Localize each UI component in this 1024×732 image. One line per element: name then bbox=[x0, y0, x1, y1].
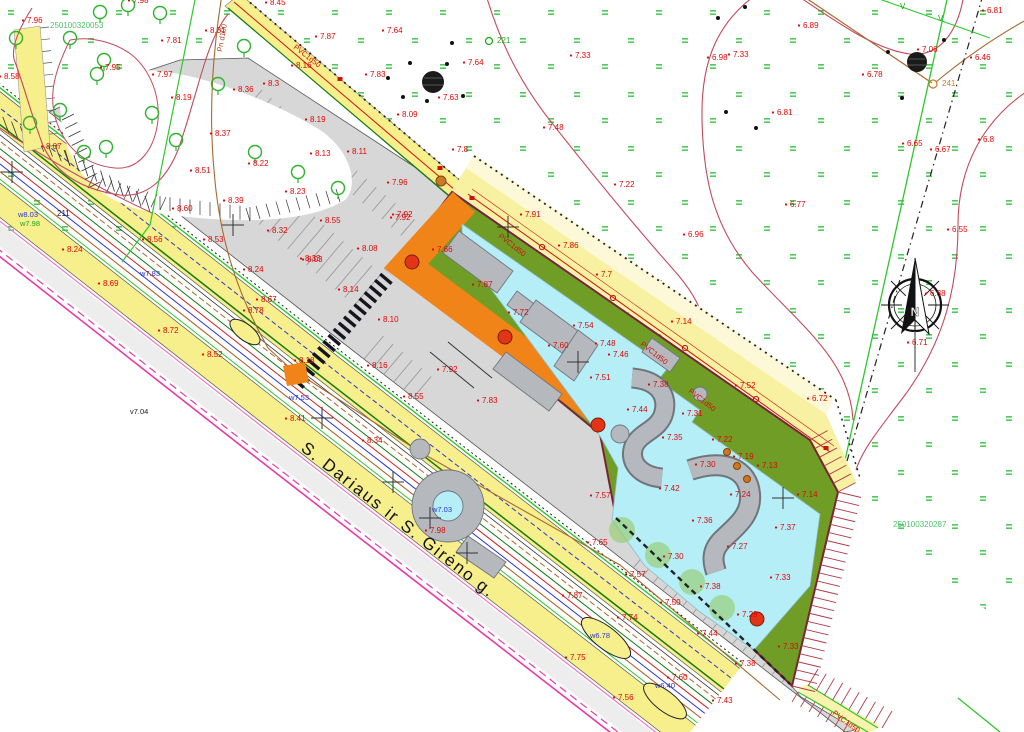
elevation-point bbox=[256, 298, 258, 300]
elevation-point bbox=[472, 283, 474, 285]
elevation-point bbox=[367, 364, 369, 366]
elevation-point bbox=[285, 417, 287, 419]
elevation-point bbox=[925, 292, 927, 294]
elevation-point bbox=[397, 113, 399, 115]
elevation-label: 8.78 bbox=[248, 306, 264, 315]
elevation-label: 7.8 bbox=[457, 145, 469, 154]
elevation-point bbox=[775, 526, 777, 528]
elevation-point bbox=[392, 213, 394, 215]
utility-label: w6.78 bbox=[589, 631, 610, 640]
elevation-point bbox=[452, 148, 454, 150]
elevation-point bbox=[315, 35, 317, 37]
elevation-label: 8.07 bbox=[46, 142, 62, 151]
elevation-label: 7.31 bbox=[687, 409, 703, 418]
elevation-point bbox=[248, 162, 250, 164]
elevation-label: 8.19 bbox=[310, 115, 326, 124]
elevation-point bbox=[365, 73, 367, 75]
elevation-point bbox=[727, 545, 729, 547]
elevation-label: 7.91 bbox=[525, 210, 541, 219]
utility-label: w8.03 bbox=[17, 210, 38, 219]
elevation-point bbox=[320, 219, 322, 221]
elevation-label: 7.42 bbox=[664, 484, 680, 493]
site-plan-canvas: N S. Dariaus ir S. Girėno g. 25010032005… bbox=[0, 0, 1024, 732]
elevation-label: 7.87 bbox=[567, 591, 583, 600]
elevation-label: 8.55 bbox=[325, 216, 341, 225]
survey-point-id: 221 bbox=[497, 36, 511, 45]
elevation-label: 8.11 bbox=[352, 147, 368, 156]
elevation-label: 7.38 bbox=[740, 659, 756, 668]
elevation-point bbox=[627, 408, 629, 410]
elevation-label: 8.69 bbox=[103, 279, 119, 288]
topographic-site-plan: N S. Dariaus ir S. Girėno g. 25010032005… bbox=[0, 0, 1024, 732]
elevation-label: 8.72 bbox=[163, 326, 179, 335]
elevation-point bbox=[22, 19, 24, 21]
elevation-point bbox=[210, 132, 212, 134]
elevation-point bbox=[265, 1, 267, 3]
elevation-point bbox=[205, 29, 207, 31]
elevation-label: 7.54 bbox=[578, 321, 594, 330]
elevation-label: 7.57 bbox=[595, 491, 611, 500]
elevation-point bbox=[310, 152, 312, 154]
elevation-point bbox=[728, 53, 730, 55]
large-tree-icon bbox=[422, 71, 444, 93]
elevation-point bbox=[590, 494, 592, 496]
elevation-point bbox=[294, 359, 296, 361]
elevation-point bbox=[172, 207, 174, 209]
elevation-point bbox=[700, 585, 702, 587]
elevation-label: 6.77 bbox=[790, 200, 806, 209]
elevation-label: 8.58 bbox=[4, 72, 20, 81]
elevation-point bbox=[438, 96, 440, 98]
tree-icon bbox=[436, 176, 446, 186]
utility-label: w7.83 bbox=[139, 269, 160, 278]
elevation-label: 7.86 bbox=[563, 241, 579, 250]
elevation-point bbox=[662, 436, 664, 438]
survey-point-id: 241 bbox=[942, 79, 956, 88]
elevation-point bbox=[917, 48, 919, 50]
elevation-point bbox=[161, 39, 163, 41]
elevation-label: 6.88 bbox=[930, 289, 946, 298]
elevation-label: 8.24 bbox=[248, 265, 264, 274]
utility-label: w6.40 bbox=[654, 681, 675, 690]
elevation-label: 6.81 bbox=[777, 108, 793, 117]
elevation-label: 8.67 bbox=[261, 295, 277, 304]
elevation-point bbox=[565, 656, 567, 658]
elevation-point bbox=[930, 148, 932, 150]
elevation-point bbox=[223, 199, 225, 201]
elevation-point bbox=[663, 555, 665, 557]
survey-point-id: V bbox=[900, 2, 906, 11]
elevation-label: 7.24 bbox=[735, 490, 751, 499]
elevation-label: 7.81 bbox=[166, 36, 182, 45]
elevation-label: 7.92 bbox=[395, 213, 411, 222]
elevation-point bbox=[596, 273, 598, 275]
elevation-point bbox=[403, 395, 405, 397]
elevation-point bbox=[477, 399, 479, 401]
elevation-point bbox=[382, 29, 384, 31]
utility-label: v7.04 bbox=[130, 407, 148, 416]
elevation-point bbox=[152, 73, 154, 75]
elevation-label: 6.55 bbox=[952, 225, 968, 234]
elevation-label: 7.96 bbox=[392, 178, 408, 187]
elevation-point bbox=[772, 111, 774, 113]
compass-north-label: N bbox=[911, 305, 920, 319]
elevation-label: 6.89 bbox=[803, 21, 819, 30]
elevation-label: 7.72 bbox=[513, 308, 529, 317]
elevation-point bbox=[862, 73, 864, 75]
elevation-point bbox=[712, 699, 714, 701]
elevation-point bbox=[190, 169, 192, 171]
elevation-point bbox=[695, 463, 697, 465]
elevation-label: 7.37 bbox=[780, 523, 796, 532]
elevation-point bbox=[735, 662, 737, 664]
elevation-label: 7.63 bbox=[443, 93, 459, 102]
elevation-point bbox=[683, 233, 685, 235]
elevation-point bbox=[425, 529, 427, 531]
elevation-label: 7.27 bbox=[732, 542, 748, 551]
elevation-point bbox=[712, 438, 714, 440]
elevation-point bbox=[982, 9, 984, 11]
elevation-label: 7.95 bbox=[105, 63, 121, 72]
elevation-label: 8.60 bbox=[177, 204, 193, 213]
elevation-point bbox=[617, 616, 619, 618]
elevation-label: 6.71 bbox=[912, 338, 928, 347]
elevation-label: 7.36 bbox=[697, 516, 713, 525]
elevation-label: 7.50 bbox=[665, 598, 681, 607]
elevation-point bbox=[305, 118, 307, 120]
elevation-label: 6.78 bbox=[867, 70, 883, 79]
elevation-point bbox=[357, 247, 359, 249]
elevation-point bbox=[590, 376, 592, 378]
elevation-point bbox=[807, 397, 809, 399]
utility-label: w7.53 bbox=[288, 393, 309, 402]
elevation-label: 6.72 bbox=[812, 394, 828, 403]
elevation-point bbox=[587, 541, 589, 543]
elevation-label: 6.65 bbox=[907, 139, 923, 148]
elevation-point bbox=[233, 88, 235, 90]
elevation-label: 8.52 bbox=[207, 350, 223, 359]
elevation-label: 7.06 bbox=[922, 45, 938, 54]
elevation-label: 7.19 bbox=[738, 452, 754, 461]
elevation-point bbox=[171, 96, 173, 98]
elevation-point bbox=[285, 190, 287, 192]
elevation-label: 8.33 bbox=[305, 254, 321, 263]
elevation-point bbox=[970, 56, 972, 58]
elevation-point bbox=[291, 64, 293, 66]
elevation-point bbox=[697, 632, 699, 634]
elevation-point bbox=[100, 66, 102, 68]
elevation-point bbox=[432, 248, 434, 250]
elevation-label: 7.22 bbox=[619, 180, 635, 189]
elevation-point bbox=[608, 353, 610, 355]
elevation-point bbox=[243, 268, 245, 270]
elevation-label: 8.37 bbox=[215, 129, 231, 138]
elevation-label: 7.83 bbox=[370, 70, 386, 79]
elevation-label: 7.56 bbox=[618, 693, 634, 702]
elevation-point bbox=[347, 150, 349, 152]
elevation-point bbox=[625, 573, 627, 575]
utility-label: w7.98 bbox=[19, 219, 40, 228]
elevation-label: 7.98 bbox=[430, 526, 446, 535]
elevation-label: 7.33 bbox=[733, 50, 749, 59]
elevation-point bbox=[508, 311, 510, 313]
elevation-label: 7.83 bbox=[482, 396, 498, 405]
survey-point-id: V bbox=[938, 14, 944, 23]
elevation-label: 7.64 bbox=[387, 26, 403, 35]
elevation-point bbox=[573, 324, 575, 326]
elevation-label: 6.96 bbox=[688, 230, 704, 239]
parcel-number-northwest: 250100320053 bbox=[50, 21, 104, 30]
elevation-point bbox=[41, 145, 43, 147]
elevation-point bbox=[202, 353, 204, 355]
elevation-point bbox=[548, 344, 550, 346]
elevation-label: 7.43 bbox=[717, 696, 733, 705]
elevation-point bbox=[798, 24, 800, 26]
elevation-label: 8.13 bbox=[315, 149, 331, 158]
elevation-point bbox=[947, 228, 949, 230]
elevation-point bbox=[648, 383, 650, 385]
elevation-point bbox=[902, 142, 904, 144]
elevation-label: 7.46 bbox=[613, 350, 629, 359]
red-tree-icon bbox=[591, 418, 605, 432]
elevation-point bbox=[735, 384, 737, 386]
elevation-label: 8.16 bbox=[372, 361, 388, 370]
elevation-point bbox=[667, 676, 669, 678]
elevation-point bbox=[243, 309, 245, 311]
elevation-point bbox=[659, 487, 661, 489]
elevation-label: 8.39 bbox=[228, 196, 244, 205]
elevation-label: 7.64 bbox=[468, 58, 484, 67]
elevation-point bbox=[98, 282, 100, 284]
elevation-point bbox=[613, 696, 615, 698]
elevation-point bbox=[770, 576, 772, 578]
elevation-label: 7.38 bbox=[653, 380, 669, 389]
elevation-point bbox=[730, 493, 732, 495]
elevation-point bbox=[158, 329, 160, 331]
elevation-point bbox=[733, 455, 735, 457]
elevation-point bbox=[267, 229, 269, 231]
elevation-point bbox=[785, 203, 787, 205]
elevation-label: 7.14 bbox=[802, 490, 818, 499]
elevation-point bbox=[757, 464, 759, 466]
elevation-label: 8.19 bbox=[176, 93, 192, 102]
elevation-label: 7.51 bbox=[595, 373, 611, 382]
elevation-label: 8.55 bbox=[408, 392, 424, 401]
elevation-point bbox=[520, 213, 522, 215]
elevation-label: 7.33 bbox=[775, 573, 791, 582]
elevation-point bbox=[614, 183, 616, 185]
survey-point-id: 211 bbox=[57, 209, 70, 218]
elevation-point bbox=[778, 645, 780, 647]
large-tree-icon bbox=[907, 52, 927, 72]
elevation-point bbox=[797, 493, 799, 495]
elevation-point bbox=[263, 82, 265, 84]
elevation-label: 7.98 bbox=[133, 0, 149, 5]
elevation-label: 7.35 bbox=[667, 433, 683, 442]
elevation-label: 7.7 bbox=[601, 270, 613, 279]
elevation-label: 8.34 bbox=[367, 436, 383, 445]
elevation-label: 7.44 bbox=[702, 629, 718, 638]
elevation-point bbox=[463, 61, 465, 63]
elevation-label: 7.33 bbox=[575, 51, 591, 60]
elevation-label: 7.97 bbox=[157, 70, 173, 79]
elevation-point bbox=[300, 257, 302, 259]
elevation-label: 8.51 bbox=[195, 166, 211, 175]
elevation-point bbox=[570, 54, 572, 56]
elevation-label: 6.46 bbox=[975, 53, 991, 62]
elevation-label: 8.3 bbox=[268, 79, 280, 88]
elevation-label: 6.8 bbox=[983, 135, 995, 144]
elevation-label: 8.23 bbox=[290, 187, 306, 196]
red-tree-icon bbox=[498, 330, 512, 344]
elevation-label: 8.10 bbox=[383, 315, 399, 324]
elevation-label: 7.75 bbox=[570, 653, 586, 662]
elevation-label: 8.53 bbox=[208, 235, 224, 244]
elevation-label: 8.18 bbox=[299, 356, 315, 365]
elevation-point bbox=[437, 368, 439, 370]
utility-label: w7.03 bbox=[431, 505, 452, 514]
elevation-label: 7.87 bbox=[320, 32, 336, 41]
elevation-point bbox=[737, 613, 739, 615]
elevation-label: 7.57 bbox=[630, 570, 646, 579]
elevation-label: 7.48 bbox=[548, 123, 564, 132]
elevation-point bbox=[390, 216, 392, 218]
elevation-point bbox=[362, 439, 364, 441]
elevation-point bbox=[671, 320, 673, 322]
elevation-point bbox=[660, 601, 662, 603]
elevation-label: 7.87 bbox=[477, 280, 493, 289]
elevation-label: 7.66 bbox=[437, 245, 453, 254]
elevation-label: 6.98 bbox=[712, 53, 728, 62]
elevation-label: 7.48 bbox=[600, 339, 616, 348]
elevation-label: 8.24 bbox=[67, 245, 83, 254]
elevation-label: 8.41 bbox=[290, 414, 306, 423]
elevation-point bbox=[302, 258, 304, 260]
elevation-label: 8.56 bbox=[147, 235, 163, 244]
elevation-label: 7.33 bbox=[783, 642, 799, 651]
elevation-label: 7.38 bbox=[705, 582, 721, 591]
elevation-label: 7.22 bbox=[717, 435, 733, 444]
elevation-label: 7.74 bbox=[622, 613, 638, 622]
elevation-label: 8.45 bbox=[270, 0, 286, 7]
elevation-label: 8.32 bbox=[272, 226, 288, 235]
elevation-point bbox=[692, 519, 694, 521]
elevation-label: 8.08 bbox=[362, 244, 378, 253]
elevation-point bbox=[978, 138, 980, 140]
elevation-label: 7.52 bbox=[740, 381, 756, 390]
elevation-point bbox=[203, 238, 205, 240]
elevation-point bbox=[682, 412, 684, 414]
elevation-label: 7.96 bbox=[27, 16, 43, 25]
elevation-label: 7.65 bbox=[592, 538, 608, 547]
crossing-landing bbox=[283, 362, 309, 386]
elevation-point bbox=[562, 594, 564, 596]
elevation-label: 7.44 bbox=[632, 405, 648, 414]
elevation-point bbox=[142, 238, 144, 240]
elevation-point bbox=[558, 244, 560, 246]
elevation-point bbox=[62, 248, 64, 250]
elevation-label: 6.67 bbox=[935, 145, 951, 154]
elevation-label: 8.36 bbox=[238, 85, 254, 94]
elevation-point bbox=[338, 288, 340, 290]
elevation-label: 7.30 bbox=[668, 552, 684, 561]
elevation-label: 7.60 bbox=[553, 341, 569, 350]
elevation-label: 8.09 bbox=[402, 110, 418, 119]
elevation-label: 7.30 bbox=[700, 460, 716, 469]
elevation-label: 7.92 bbox=[442, 365, 458, 374]
elevation-label: 8.14 bbox=[343, 285, 359, 294]
elevation-point bbox=[543, 126, 545, 128]
elevation-label: 7.29 bbox=[742, 610, 758, 619]
elevation-point bbox=[707, 56, 709, 58]
elevation-label: 6.81 bbox=[987, 6, 1003, 15]
elevation-label: 7.14 bbox=[676, 317, 692, 326]
parcel-number-east: 250100320287 bbox=[893, 520, 947, 529]
elevation-label: 8.22 bbox=[253, 159, 269, 168]
elevation-point bbox=[595, 342, 597, 344]
elevation-point bbox=[907, 341, 909, 343]
red-tree-icon bbox=[405, 255, 419, 269]
elevation-label: 7.13 bbox=[762, 461, 778, 470]
elevation-point bbox=[378, 318, 380, 320]
elevation-point bbox=[387, 181, 389, 183]
